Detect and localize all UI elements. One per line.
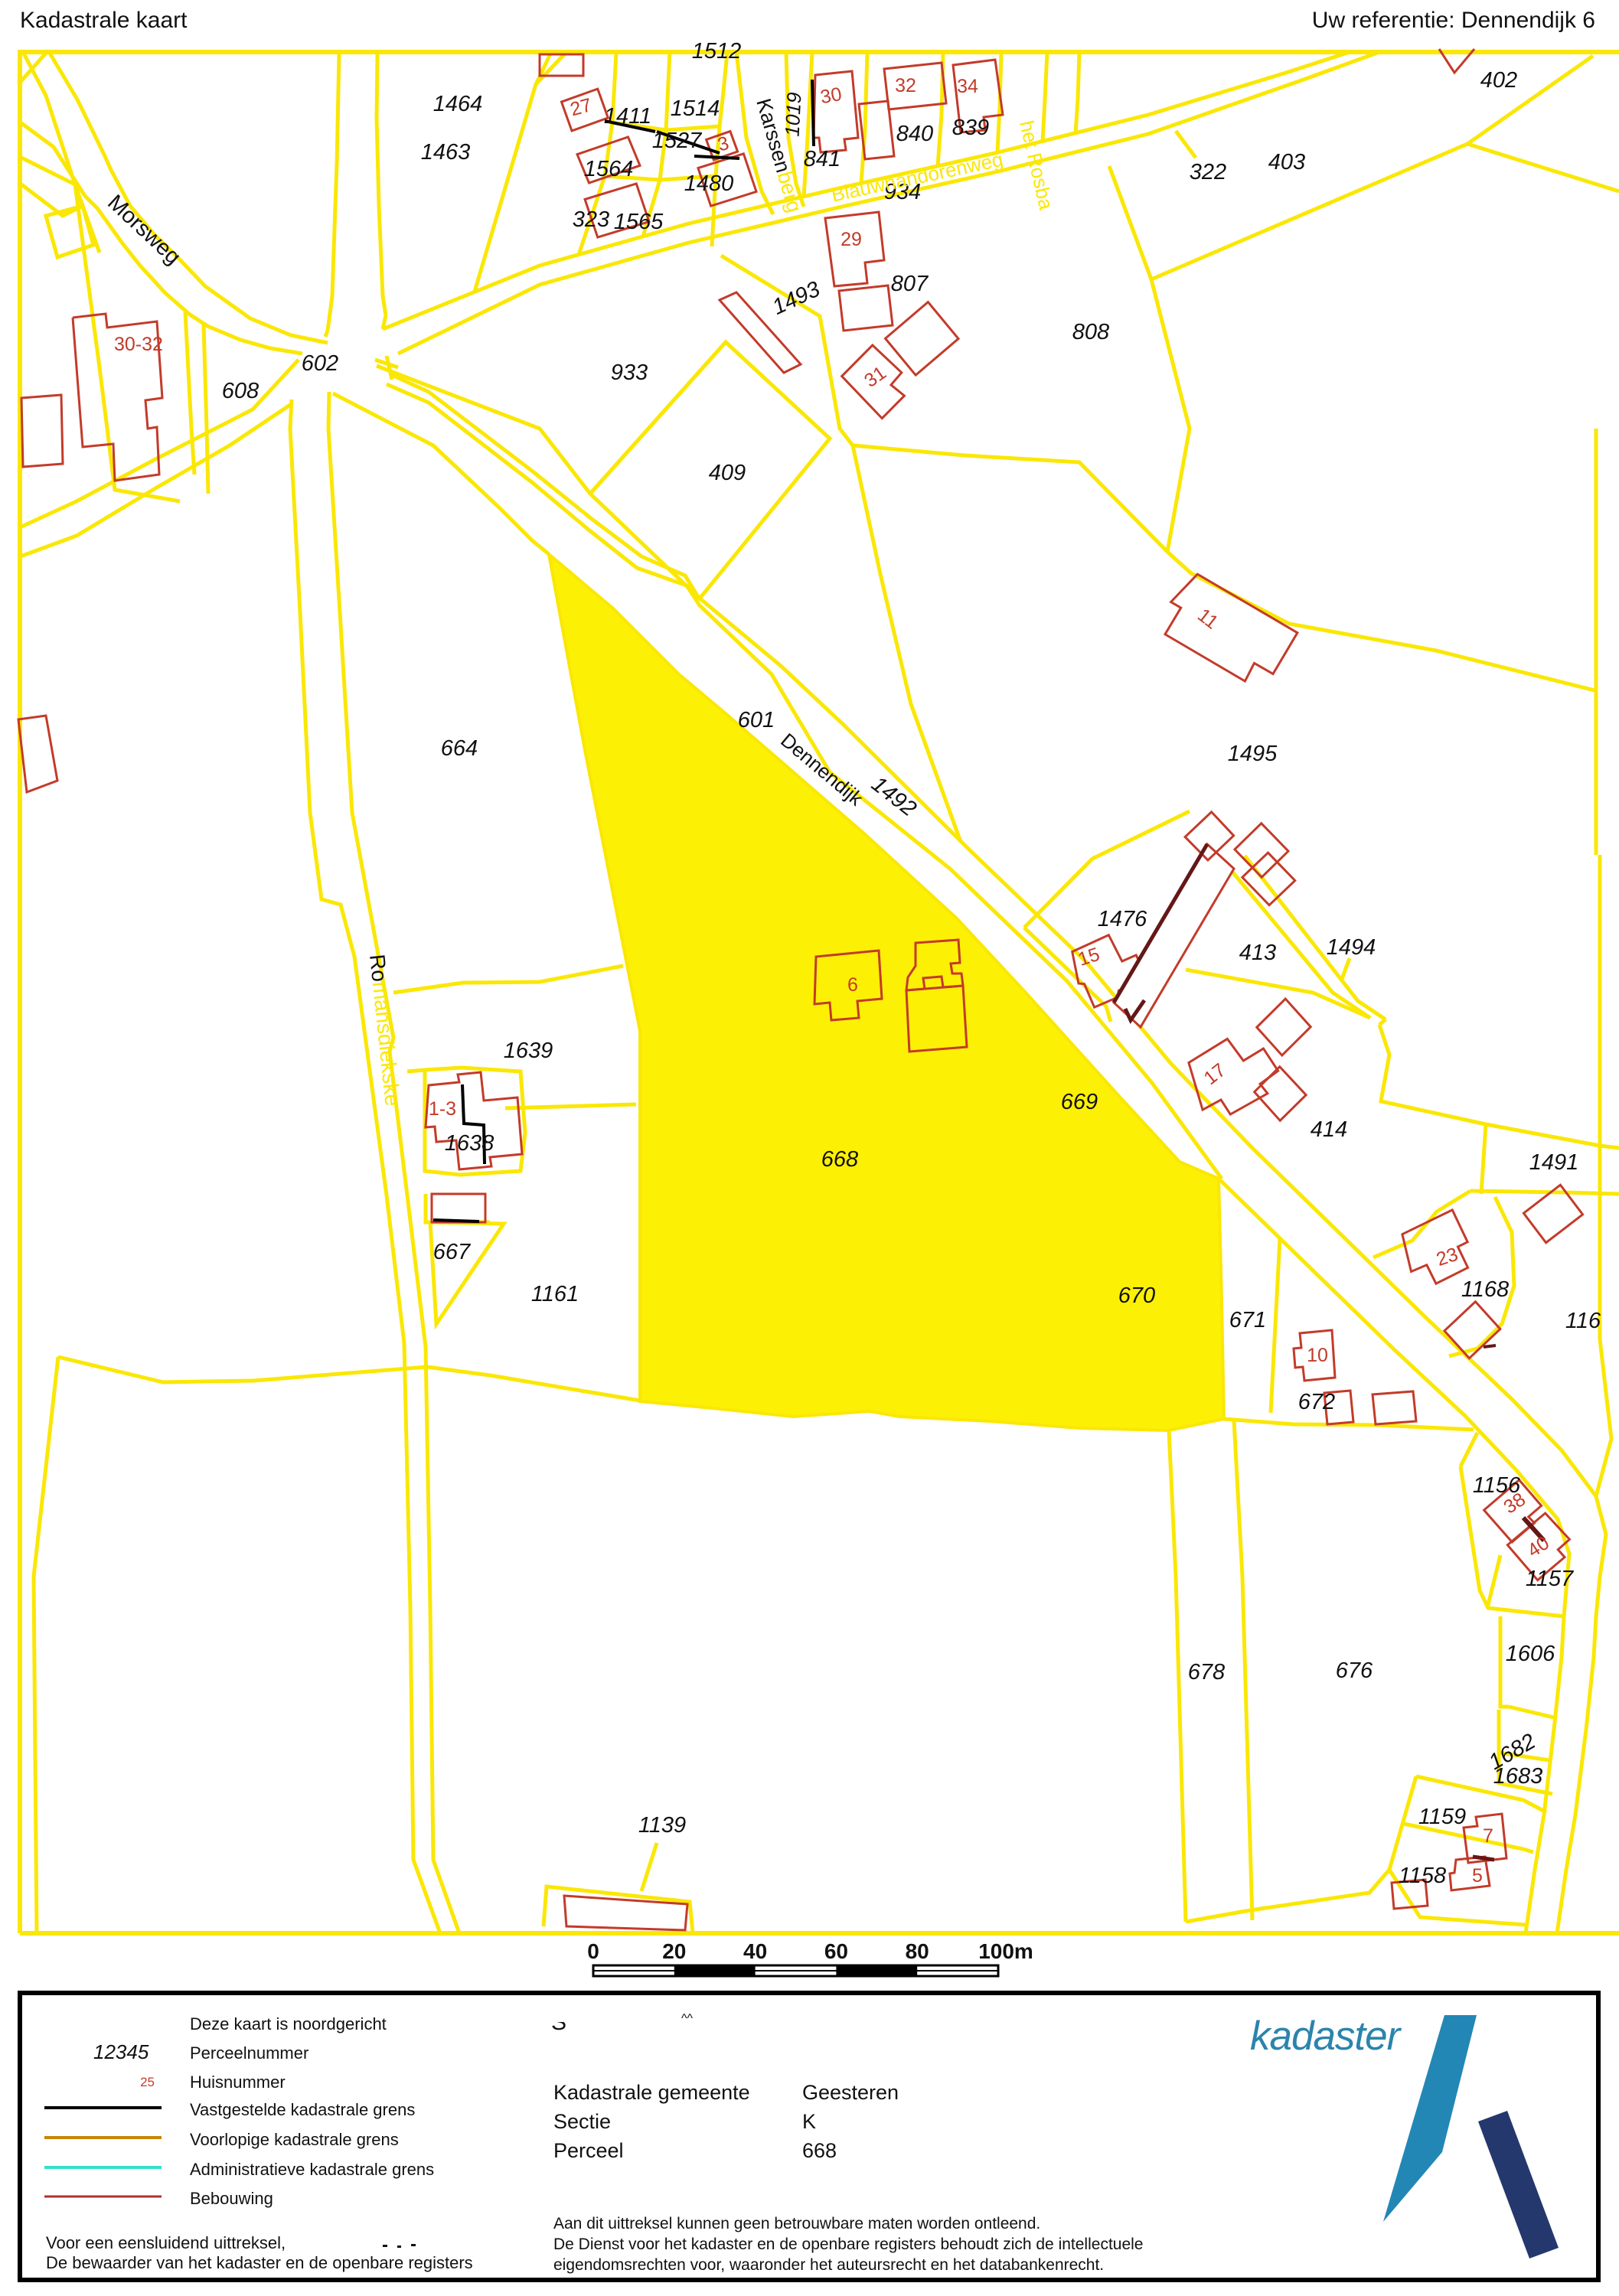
- svg-text:602: 602: [302, 351, 338, 376]
- svg-text:1159: 1159: [1418, 1805, 1466, 1829]
- svg-text:414: 414: [1311, 1117, 1347, 1142]
- svg-text:402: 402: [1480, 68, 1517, 93]
- svg-text:1512: 1512: [692, 39, 742, 64]
- svg-text:Voorlopige kadastrale grens: Voorlopige kadastrale grens: [190, 2130, 399, 2149]
- svg-text:676: 676: [1336, 1658, 1373, 1683]
- svg-text:100m: 100m: [978, 1939, 1033, 1963]
- svg-text:322: 322: [1190, 160, 1226, 184]
- svg-text:841: 841: [804, 147, 841, 171]
- svg-text:1639: 1639: [504, 1039, 553, 1063]
- svg-text:Administratieve kadastrale gre: Administratieve kadastrale grens: [190, 2160, 434, 2179]
- svg-text:671: 671: [1229, 1308, 1266, 1332]
- svg-text:667: 667: [433, 1240, 472, 1264]
- svg-text:413: 413: [1239, 941, 1276, 965]
- svg-text:De bewaarder van het kadaster: De bewaarder van het kadaster en de open…: [46, 2253, 473, 2272]
- svg-text:409: 409: [709, 461, 746, 485]
- svg-text:1-3: 1-3: [429, 1098, 456, 1120]
- svg-text:1491: 1491: [1529, 1150, 1579, 1175]
- svg-text:1168: 1168: [1461, 1277, 1509, 1302]
- svg-text:1463: 1463: [421, 140, 471, 165]
- svg-text:Deze kaart is noordgericht: Deze kaart is noordgericht: [190, 2014, 387, 2033]
- svg-text:807: 807: [891, 272, 929, 296]
- svg-text:1565: 1565: [614, 210, 664, 234]
- svg-text:669: 669: [1061, 1090, 1098, 1114]
- svg-text:Voor een eensluidend uittrekse: Voor een eensluidend uittreksel,: [46, 2233, 286, 2252]
- svg-text:30-32: 30-32: [114, 334, 163, 355]
- svg-text:116: 116: [1565, 1309, 1601, 1333]
- svg-text:0: 0: [587, 1939, 599, 1963]
- svg-text:1638: 1638: [445, 1131, 495, 1156]
- svg-text:80: 80: [906, 1939, 929, 1963]
- svg-text:Perceelnummer: Perceelnummer: [190, 2043, 308, 2063]
- svg-text:eigendomsrechten voor, waarond: eigendomsrechten voor, waaronder het aut…: [553, 2256, 1104, 2274]
- svg-text:840: 840: [896, 122, 933, 146]
- svg-text:1683: 1683: [1493, 1764, 1543, 1789]
- svg-text:K: K: [802, 2110, 816, 2133]
- svg-text:Sectie: Sectie: [553, 2110, 611, 2133]
- svg-text:7: 7: [1483, 1825, 1493, 1847]
- svg-text:Kadastrale gemeente: Kadastrale gemeente: [553, 2081, 750, 2104]
- svg-text:670: 670: [1118, 1283, 1155, 1308]
- svg-text:34: 34: [957, 76, 978, 97]
- svg-text:Vastgestelde kadastrale grens: Vastgestelde kadastrale grens: [190, 2100, 415, 2119]
- svg-text:668: 668: [802, 2139, 837, 2162]
- svg-text:Aan dit uittreksel kunnen geen: Aan dit uittreksel kunnen geen betrouwba…: [553, 2215, 1040, 2232]
- svg-text:kadaster: kadaster: [1250, 2014, 1402, 2059]
- svg-text:1476: 1476: [1098, 907, 1147, 931]
- svg-text:Uw referentie: Dennendijk 6: Uw referentie: Dennendijk 6: [1312, 8, 1595, 33]
- svg-text:1527: 1527: [652, 129, 703, 153]
- svg-text:403: 403: [1268, 150, 1305, 174]
- svg-text:672: 672: [1298, 1390, 1335, 1414]
- svg-text:1158: 1158: [1399, 1864, 1446, 1888]
- svg-text:32: 32: [895, 75, 916, 96]
- svg-text:Perceel: Perceel: [553, 2139, 624, 2162]
- svg-text:1161: 1161: [531, 1282, 579, 1306]
- svg-text:1606: 1606: [1506, 1642, 1555, 1666]
- svg-text:1411: 1411: [604, 104, 651, 129]
- svg-text:608: 608: [222, 379, 259, 403]
- svg-text:1464: 1464: [433, 92, 483, 116]
- svg-text:839: 839: [952, 116, 989, 140]
- svg-text:1480: 1480: [684, 171, 734, 196]
- svg-text:933: 933: [611, 360, 648, 385]
- svg-text:12345: 12345: [93, 2040, 149, 2063]
- svg-text:10: 10: [1307, 1345, 1328, 1366]
- svg-text:Huisnummer: Huisnummer: [190, 2073, 286, 2092]
- svg-text:30: 30: [818, 83, 843, 108]
- svg-text:678: 678: [1188, 1660, 1225, 1684]
- svg-text:6: 6: [847, 974, 858, 996]
- svg-text:40: 40: [743, 1939, 767, 1963]
- svg-text:20: 20: [662, 1939, 686, 1963]
- svg-text:Kadastrale kaart: Kadastrale kaart: [20, 8, 188, 33]
- svg-text:Geesteren: Geesteren: [802, 2081, 899, 2104]
- svg-text:668: 668: [821, 1147, 858, 1172]
- svg-text:808: 808: [1072, 320, 1109, 344]
- svg-text:1514: 1514: [671, 96, 720, 121]
- svg-text:29: 29: [841, 229, 862, 250]
- svg-text:323: 323: [573, 207, 609, 232]
- svg-text:1157: 1157: [1526, 1567, 1575, 1591]
- svg-text:^^: ^^: [681, 2012, 694, 2025]
- svg-text:5: 5: [1472, 1865, 1483, 1887]
- svg-text:De Dienst voor het kadaster en: De Dienst voor het kadaster en de openba…: [553, 2236, 1143, 2253]
- svg-text:60: 60: [824, 1939, 848, 1963]
- svg-text:601: 601: [738, 708, 775, 732]
- svg-text:1495: 1495: [1228, 742, 1278, 766]
- svg-text:664: 664: [441, 736, 478, 761]
- svg-text:25: 25: [140, 2075, 155, 2089]
- svg-text:1494: 1494: [1327, 935, 1376, 960]
- svg-text:1139: 1139: [638, 1813, 686, 1838]
- svg-text:1564: 1564: [584, 157, 634, 181]
- svg-text:Bebouwing: Bebouwing: [190, 2189, 273, 2208]
